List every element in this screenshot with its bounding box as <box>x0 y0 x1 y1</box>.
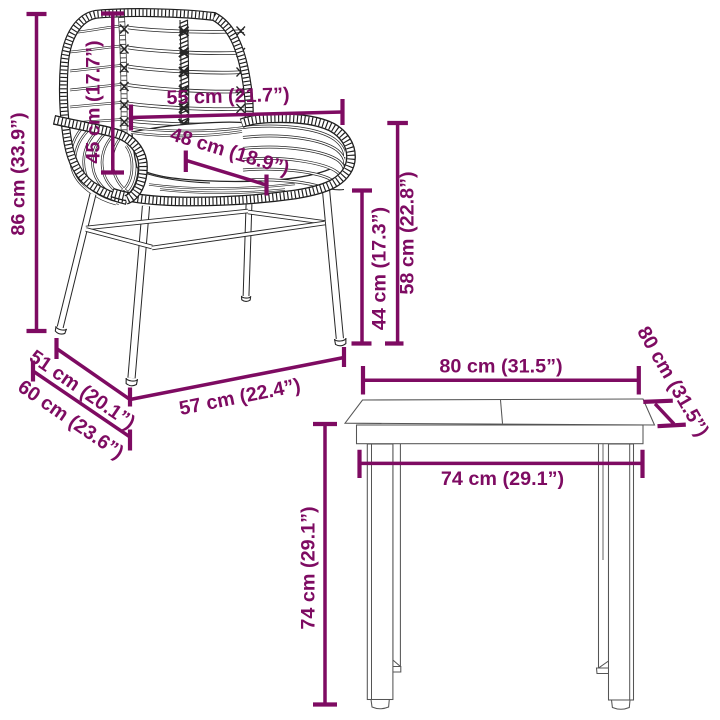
svg-text:80 cm (31.5”): 80 cm (31.5”) <box>439 356 562 378</box>
svg-text:55 cm (21.7”): 55 cm (21.7”) <box>166 84 290 109</box>
svg-text:44 cm (17.3”): 44 cm (17.3”) <box>369 207 391 330</box>
svg-text:74 cm (29.1”): 74 cm (29.1”) <box>298 506 320 629</box>
svg-text:45 cm (17.7”): 45 cm (17.7”) <box>83 40 105 163</box>
svg-text:86 cm (33.9”): 86 cm (33.9”) <box>8 112 30 235</box>
svg-text:58 cm (22.8”): 58 cm (22.8”) <box>397 171 419 294</box>
svg-text:57 cm (22.4”): 57 cm (22.4”) <box>177 374 302 420</box>
svg-text:74 cm (29.1”): 74 cm (29.1”) <box>441 468 564 490</box>
